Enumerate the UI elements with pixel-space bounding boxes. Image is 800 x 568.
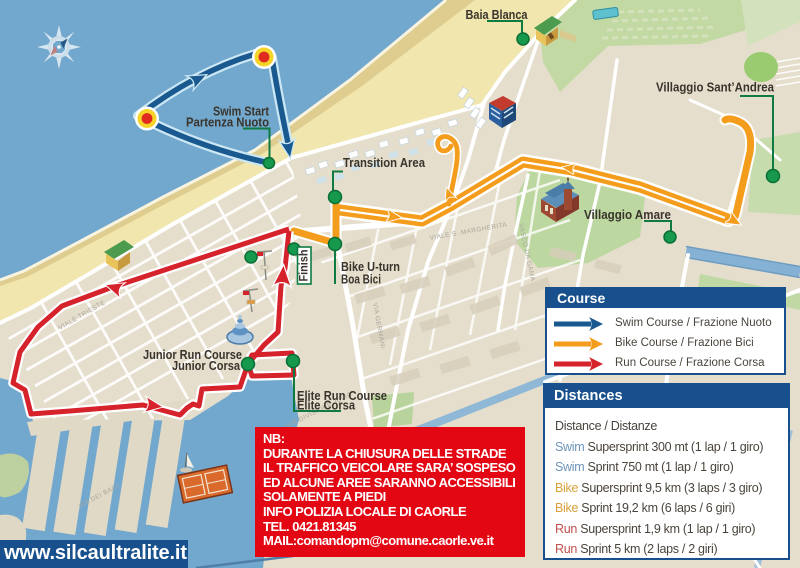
svg-text:Elite Corsa: Elite Corsa xyxy=(297,399,356,413)
svg-text:Boa Bici: Boa Bici xyxy=(341,273,381,287)
svg-text:Partenza Nuoto: Partenza Nuoto xyxy=(186,116,269,130)
svg-text:Transition Area: Transition Area xyxy=(343,156,426,170)
svg-text:Finish: Finish xyxy=(299,250,311,282)
svg-text:Villaggio Sant’Andrea: Villaggio Sant’Andrea xyxy=(656,81,775,95)
svg-text:Junior Corsa: Junior Corsa xyxy=(172,359,241,373)
svg-text:Baia Blanca: Baia Blanca xyxy=(466,7,529,22)
svg-text:Villaggio Amare: Villaggio Amare xyxy=(584,208,671,222)
